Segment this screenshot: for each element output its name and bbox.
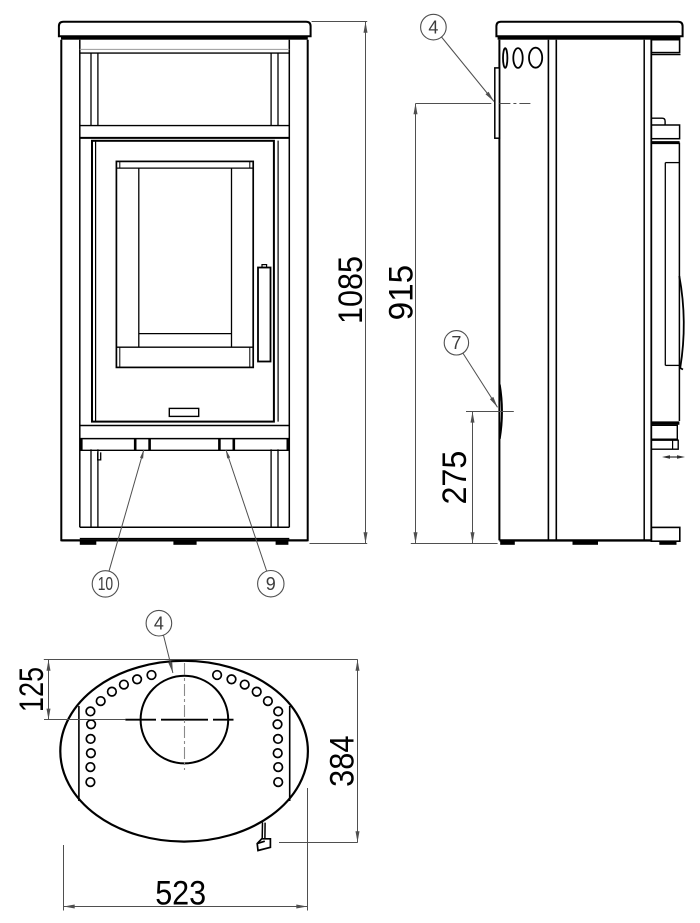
svg-text:915: 915 [382, 265, 420, 321]
svg-text:10: 10 [98, 574, 113, 594]
svg-text:4: 4 [428, 17, 438, 37]
svg-text:9: 9 [266, 574, 276, 594]
svg-text:275: 275 [436, 451, 474, 505]
svg-text:384: 384 [324, 736, 362, 787]
svg-text:7: 7 [451, 333, 461, 353]
svg-text:125: 125 [13, 667, 51, 712]
svg-text:1085: 1085 [332, 256, 370, 324]
svg-text:523: 523 [155, 875, 206, 913]
svg-text:4: 4 [154, 613, 164, 633]
